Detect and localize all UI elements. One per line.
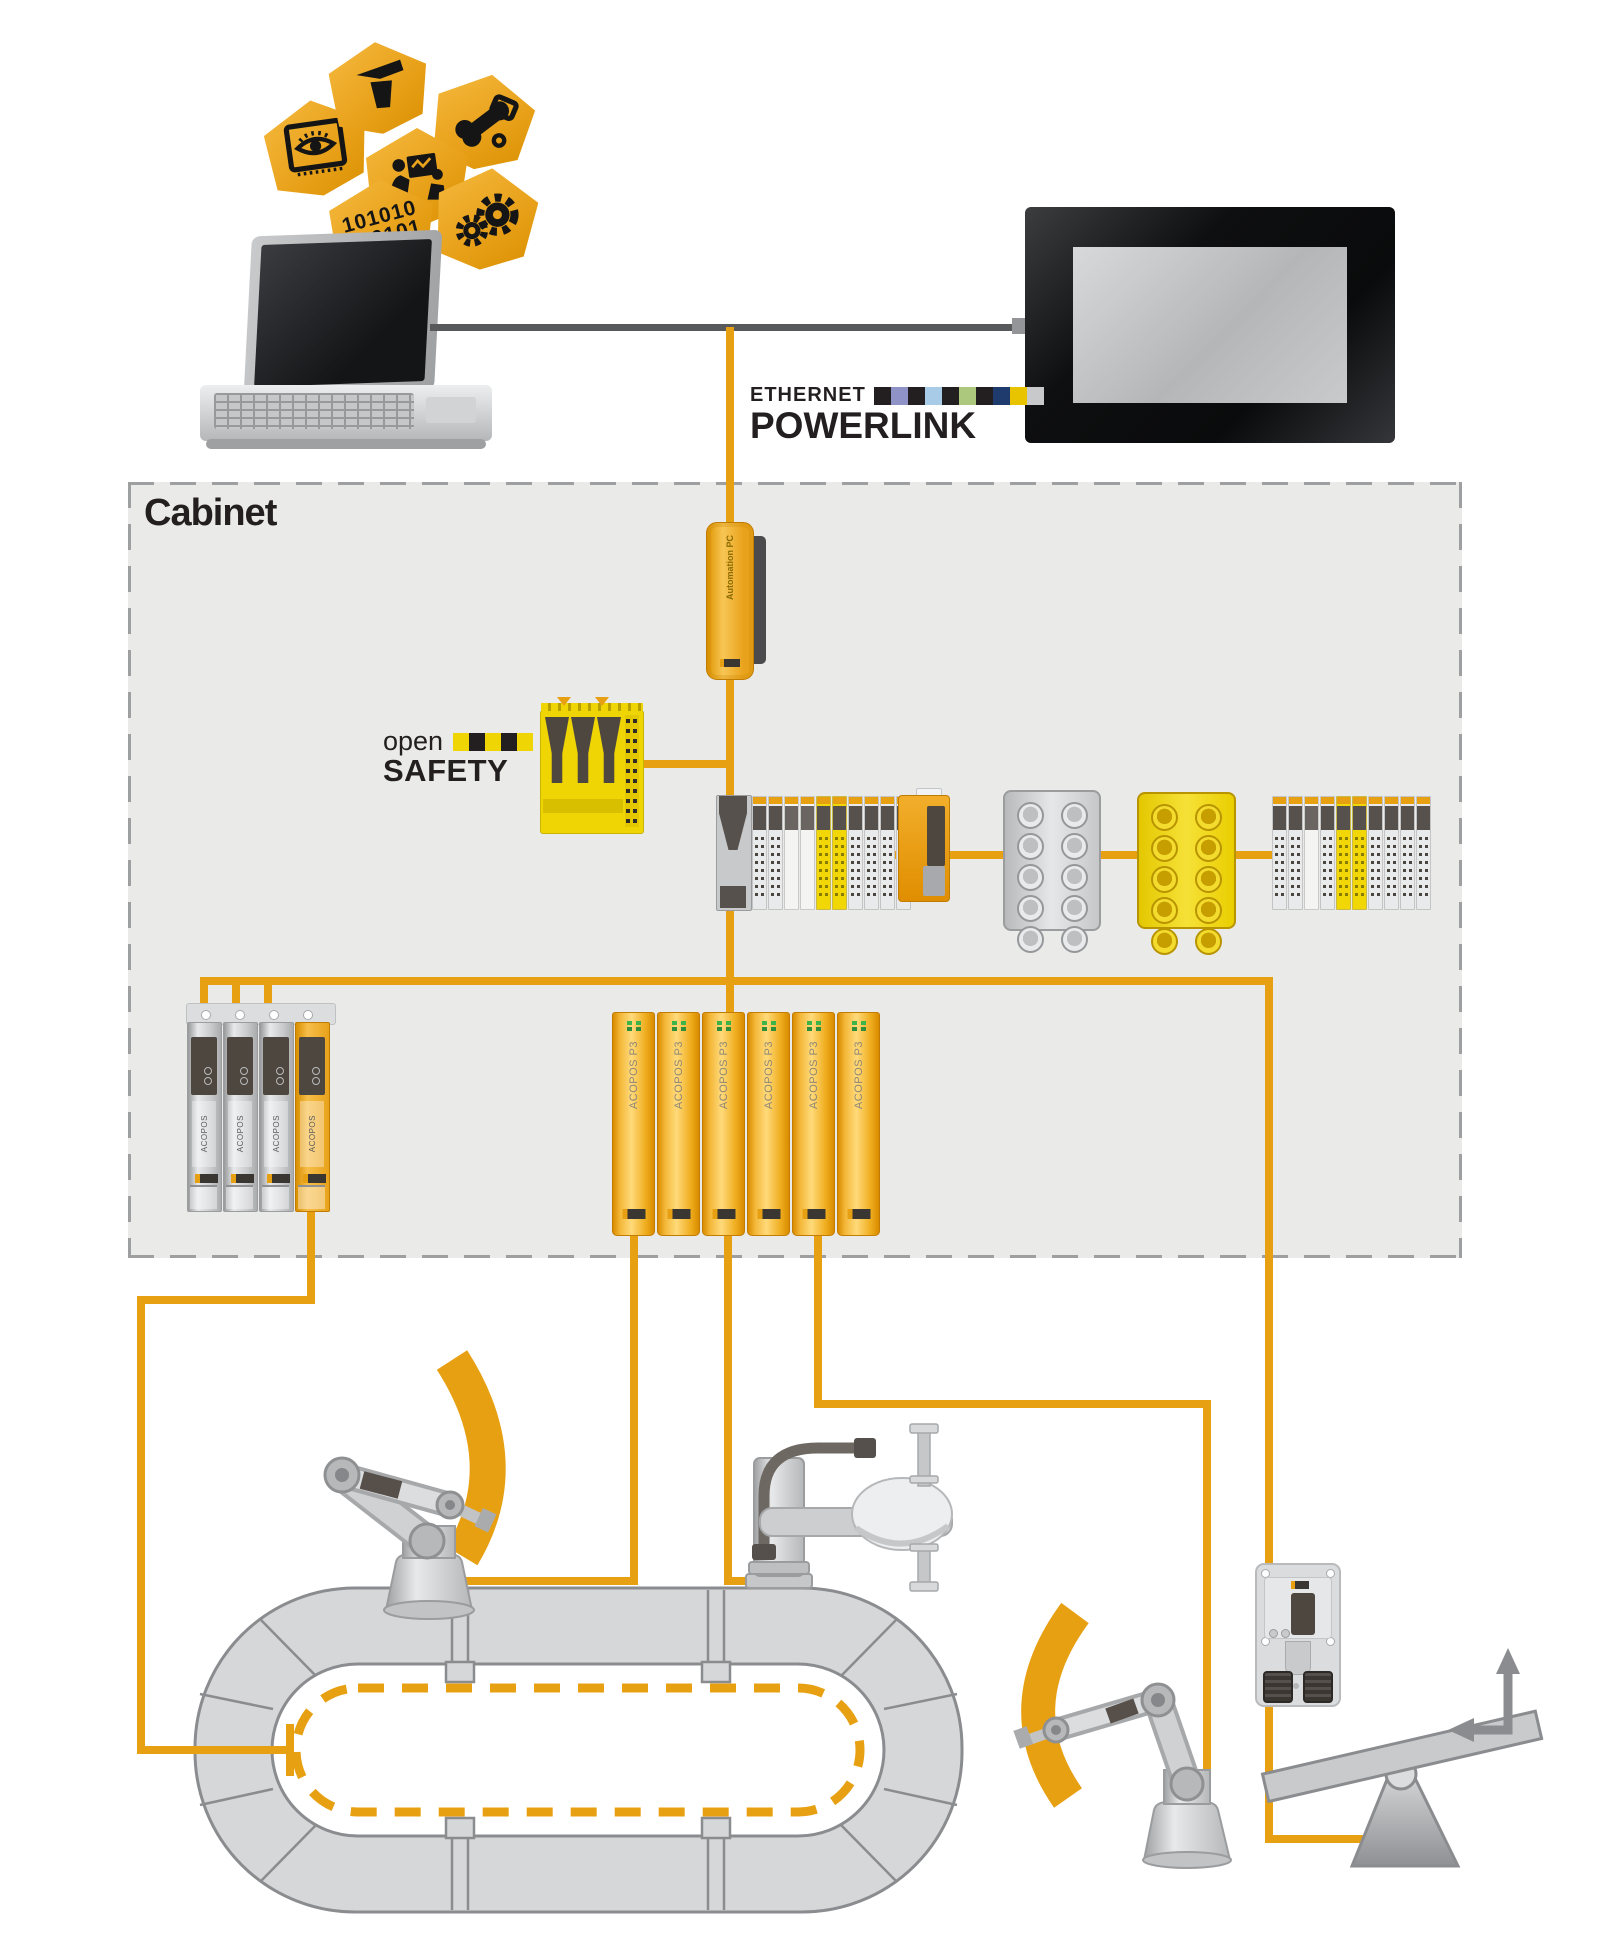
m12-connector xyxy=(1151,897,1178,924)
x20-bus-controller xyxy=(716,795,752,911)
x20-module xyxy=(1288,796,1303,910)
m12-connector xyxy=(1151,835,1178,862)
status-led xyxy=(627,1021,641,1031)
color-block xyxy=(501,733,517,751)
x20-module xyxy=(1384,796,1399,910)
x20-module xyxy=(1368,796,1383,910)
br-logo xyxy=(622,1209,645,1219)
automation-pc-label: Automation PC xyxy=(725,535,735,600)
status-led xyxy=(717,1021,731,1031)
laptop-keyboard xyxy=(214,393,414,429)
x20-module xyxy=(864,796,879,910)
safety-label: SAFETY xyxy=(383,753,533,789)
x20-module xyxy=(1336,796,1351,910)
m12-connector xyxy=(1017,895,1044,922)
m12-connector xyxy=(1195,897,1222,924)
color-block xyxy=(1010,387,1027,405)
ethernet-label: ETHERNET xyxy=(750,384,866,407)
x20-module xyxy=(1352,796,1367,910)
m12-connector xyxy=(1061,833,1088,860)
status-led xyxy=(807,1021,821,1031)
status-led xyxy=(672,1021,686,1031)
cabinet-label: Cabinet xyxy=(144,492,276,535)
servo-drive-3: ACOPOS xyxy=(259,1022,294,1212)
x20-module xyxy=(1304,796,1319,910)
x20-module xyxy=(768,796,783,910)
m12-connector xyxy=(1017,926,1044,953)
m12-connector xyxy=(1151,928,1178,955)
m12-connector xyxy=(1017,864,1044,891)
br-logo xyxy=(267,1174,290,1183)
color-block xyxy=(908,387,925,405)
x20-module xyxy=(752,796,767,910)
br-logo xyxy=(303,1174,326,1183)
acopos-p3-drive-1: ACOPOS P3 xyxy=(612,1012,655,1236)
safety-link-cable xyxy=(642,760,730,768)
marker-triangle xyxy=(595,697,609,713)
color-block xyxy=(993,387,1010,405)
powerlink-label: POWERLINK xyxy=(750,405,1044,447)
robot-arm-2 xyxy=(1013,1613,1231,1868)
safety-io-block xyxy=(540,710,644,834)
m12-connector xyxy=(1061,802,1088,829)
br-logo xyxy=(195,1174,218,1183)
color-block xyxy=(469,733,485,751)
m12-connector xyxy=(1061,895,1088,922)
laptop-screen xyxy=(244,230,443,397)
m12-connector xyxy=(1061,926,1088,953)
servo-drive-4: ACOPOS xyxy=(295,1022,330,1212)
color-block xyxy=(1027,387,1044,405)
x20-module xyxy=(784,796,799,910)
color-block xyxy=(517,733,533,751)
diagram-canvas: Cabinet 101010010101 xyxy=(0,0,1600,1958)
x20-module xyxy=(832,796,847,910)
power-connector xyxy=(1303,1671,1333,1703)
m12-connector xyxy=(1195,866,1222,893)
x20-module xyxy=(816,796,831,910)
laptop-base xyxy=(200,385,492,441)
status-led xyxy=(762,1021,776,1031)
m12-connector xyxy=(1017,833,1044,860)
power-connector xyxy=(1263,1671,1293,1703)
m12-connector xyxy=(1195,804,1222,831)
powerlink-logo: ETHERNET POWERLINK xyxy=(750,384,1044,447)
x20-module xyxy=(1272,796,1287,910)
servo-drive-2: ACOPOS xyxy=(223,1022,258,1212)
servo-drive-1: ACOPOS xyxy=(187,1022,222,1212)
br-logo xyxy=(757,1209,780,1219)
color-block xyxy=(925,387,942,405)
x20-station-2 xyxy=(1272,796,1431,910)
acopos-p3-drive-6: ACOPOS P3 xyxy=(837,1012,880,1236)
press-icon xyxy=(326,38,432,138)
color-block xyxy=(453,733,469,751)
motion-arc-2 xyxy=(1038,1613,1075,1798)
x67-bus-coupler xyxy=(898,795,950,902)
br-logo xyxy=(667,1209,690,1219)
br-logo xyxy=(720,659,740,667)
acopos-p3-drive-5: ACOPOS P3 xyxy=(792,1012,835,1236)
motor-mounted-drive xyxy=(1255,1563,1341,1707)
laptop xyxy=(200,225,500,455)
laptop-touchpad xyxy=(426,397,476,423)
x20-module xyxy=(800,796,815,910)
opensafety-color-strip xyxy=(453,733,533,751)
x20-module xyxy=(880,796,895,910)
status-led xyxy=(852,1021,866,1031)
floor-scene xyxy=(100,1238,1560,1958)
x20-module xyxy=(848,796,863,910)
m12-connector xyxy=(1151,804,1178,831)
m12-connector xyxy=(1195,835,1222,862)
m12-connector xyxy=(1151,866,1178,893)
m12-connector xyxy=(1017,802,1044,829)
br-logo xyxy=(1291,1581,1309,1589)
color-block xyxy=(976,387,993,405)
x20-module xyxy=(1400,796,1415,910)
x67-io-block-safety xyxy=(1137,792,1236,929)
x20-module xyxy=(1416,796,1431,910)
color-block xyxy=(891,387,908,405)
x20-module xyxy=(1320,796,1335,910)
acopos-p3-drive-4: ACOPOS P3 xyxy=(747,1012,790,1236)
opensafety-logo: open SAFETY xyxy=(383,726,533,789)
conveyor-track xyxy=(195,1588,962,1912)
powerlink-color-strip xyxy=(874,387,1044,405)
br-logo xyxy=(847,1209,870,1219)
acopos-p3-drive-2: ACOPOS P3 xyxy=(657,1012,700,1236)
x20-station-1 xyxy=(752,796,911,910)
color-block xyxy=(485,733,501,751)
scara-robot xyxy=(746,1424,952,1591)
m12-connector xyxy=(1061,864,1088,891)
acopos-p3-drive-3: ACOPOS P3 xyxy=(702,1012,745,1236)
branch-cable-horizontal xyxy=(200,977,1273,985)
color-block xyxy=(874,387,891,405)
br-logo xyxy=(231,1174,254,1183)
operator-panel xyxy=(1025,207,1395,443)
automation-pc: Automation PC xyxy=(706,522,754,680)
color-block xyxy=(942,387,959,405)
br-logo xyxy=(712,1209,735,1219)
x67-io-block-gray xyxy=(1003,790,1101,931)
marker-triangle xyxy=(557,697,571,713)
color-block xyxy=(959,387,976,405)
panel-screen xyxy=(1073,247,1347,403)
br-logo xyxy=(802,1209,825,1219)
